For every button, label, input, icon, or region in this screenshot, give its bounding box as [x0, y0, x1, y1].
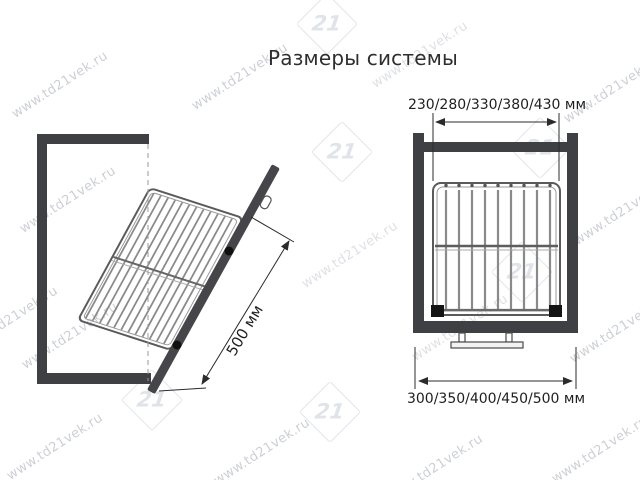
basket-wires: [86, 193, 232, 343]
diagram-canvas: 500 мм: [0, 0, 640, 480]
support-base-plate: [451, 342, 523, 348]
side-view-diagram: 500 мм: [37, 134, 294, 398]
extension-line: [159, 388, 206, 391]
dimension-500mm: [159, 217, 294, 391]
cabinet-right-panel: [567, 133, 578, 333]
cabinet-top-panel: [424, 142, 567, 152]
cabinet-left-panel: [413, 133, 424, 333]
cabinet-top-panel: [37, 134, 149, 144]
support-post: [459, 333, 465, 342]
wire-basket-front: [431, 183, 562, 317]
page: www.td21vek.ru www.td21vek.ru www.td21ve…: [0, 0, 640, 480]
basket-outer-rim: [433, 183, 560, 315]
basket-foot: [431, 305, 444, 317]
cabinet-bottom-panel: [37, 373, 151, 384]
front-view-diagram: 230/280/330/380/430 мм 300/350/400/450/5…: [407, 97, 586, 407]
basket-inner-rim: [437, 187, 556, 311]
floor-support: [451, 333, 523, 348]
extension-line: [251, 217, 294, 242]
dimension-label-inner-width: 230/280/330/380/430 мм: [408, 97, 586, 113]
door-mount-dot: [225, 247, 234, 256]
dimension-label-outer-width: 300/350/400/450/500 мм: [407, 391, 585, 407]
dimension-label-depth: 500 мм: [223, 302, 267, 359]
cabinet-frame-front: [413, 133, 578, 333]
dimension-outer-width: [415, 347, 576, 389]
door-mount-dot: [173, 341, 182, 350]
basket-foot: [549, 305, 562, 317]
support-post: [506, 333, 512, 342]
cabinet-back-panel: [37, 134, 47, 384]
cabinet-bottom-panel: [413, 321, 578, 333]
